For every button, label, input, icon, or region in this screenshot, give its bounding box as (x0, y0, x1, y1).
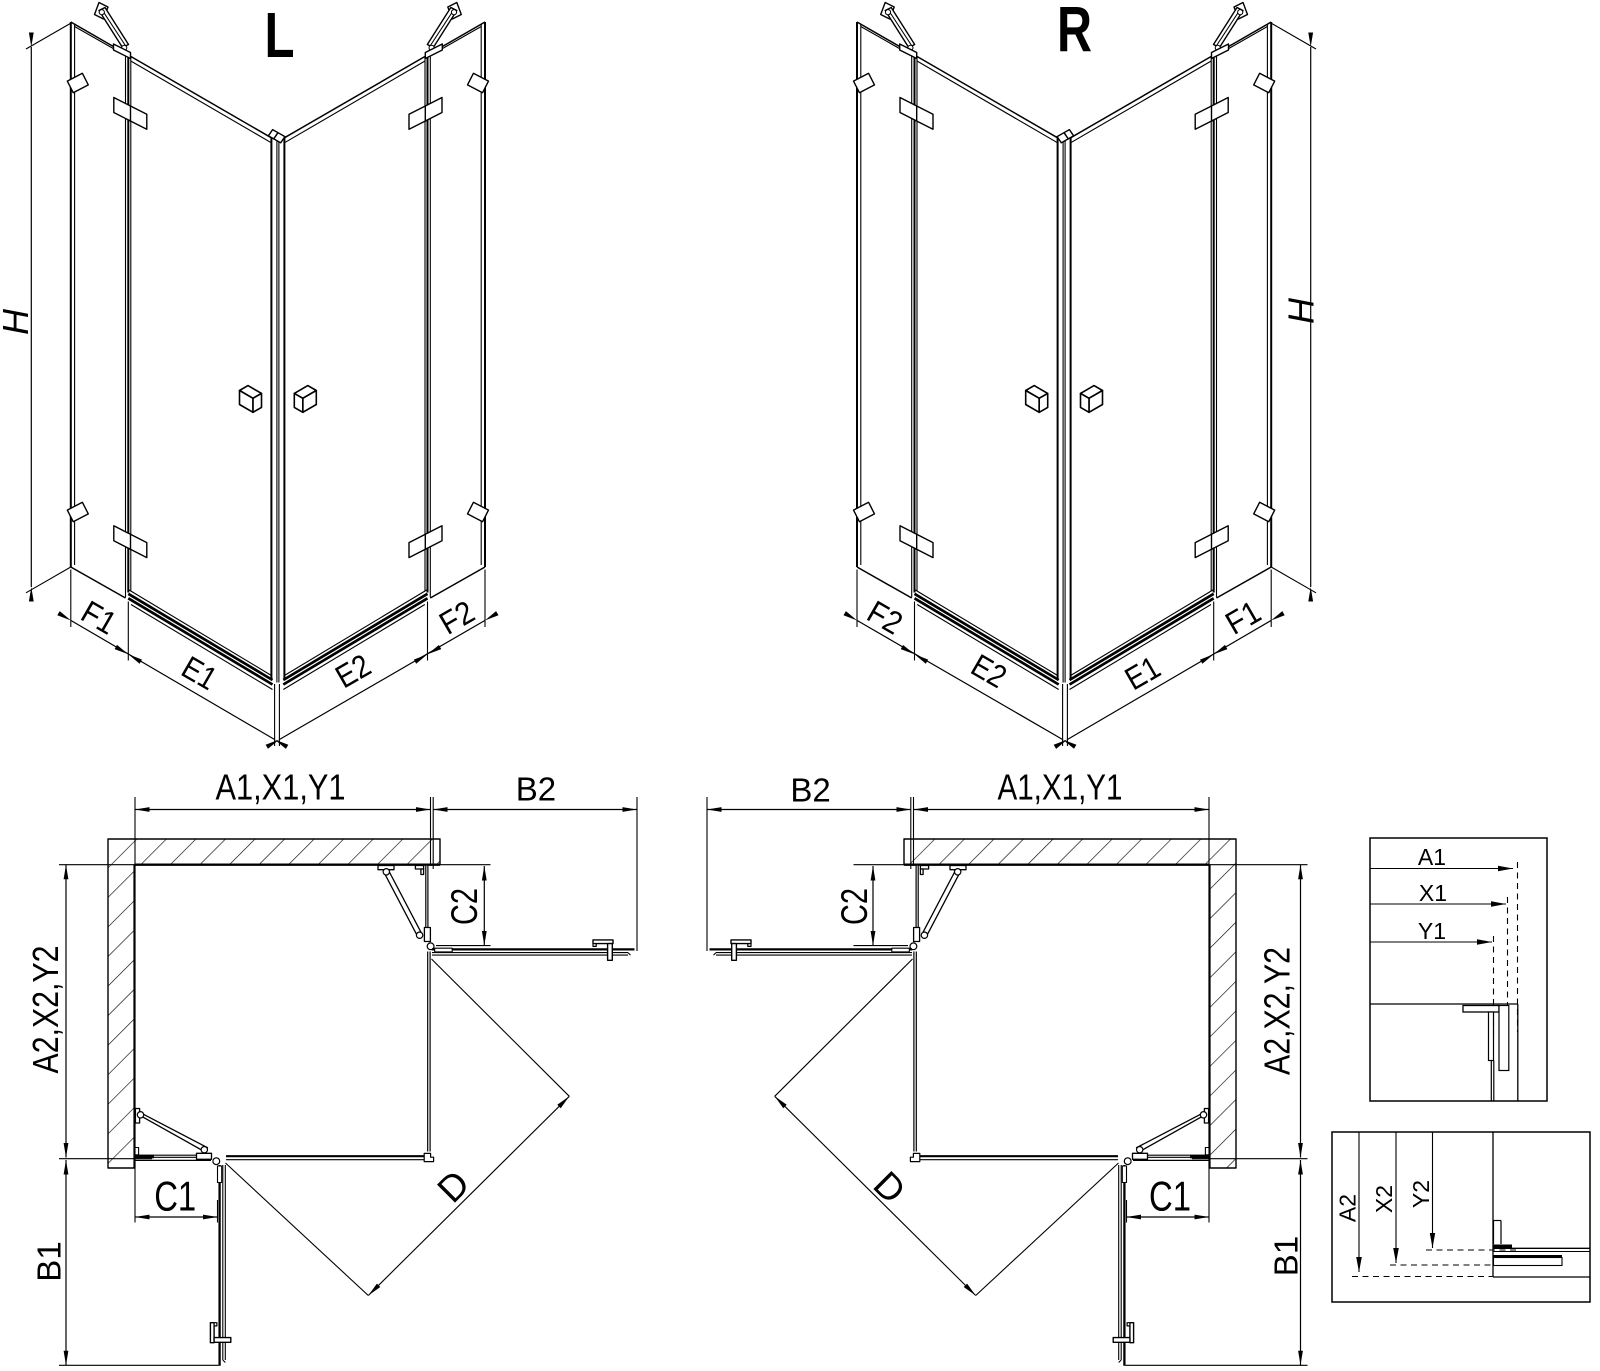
svg-text:C1: C1 (154, 1173, 196, 1220)
svg-text:A1: A1 (1418, 844, 1446, 870)
svg-text:A2: A2 (1335, 1194, 1361, 1222)
svg-text:B1: B1 (31, 1241, 68, 1281)
svg-text:B2: B2 (790, 772, 830, 809)
svg-text:A1,X1,Y1: A1,X1,Y1 (998, 767, 1123, 808)
svg-text:R: R (1057, 0, 1092, 66)
svg-text:B2: B2 (516, 771, 556, 808)
svg-text:X1: X1 (1419, 880, 1447, 906)
svg-text:C2: C2 (834, 888, 875, 925)
svg-text:H: H (1281, 297, 1322, 324)
svg-text:Y1: Y1 (1418, 918, 1446, 944)
svg-text:L: L (265, 0, 295, 71)
svg-text:A2,X2,Y2: A2,X2,Y2 (1257, 947, 1298, 1075)
svg-text:B1: B1 (1268, 1236, 1305, 1276)
svg-text:C1: C1 (1149, 1173, 1191, 1220)
svg-text:H: H (0, 308, 36, 335)
svg-text:C2: C2 (444, 888, 485, 925)
svg-text:Y2: Y2 (1408, 1180, 1434, 1208)
svg-text:A2,X2,Y2: A2,X2,Y2 (25, 946, 66, 1074)
svg-text:A1,X1,Y1: A1,X1,Y1 (216, 767, 346, 808)
svg-text:X2: X2 (1371, 1185, 1397, 1213)
